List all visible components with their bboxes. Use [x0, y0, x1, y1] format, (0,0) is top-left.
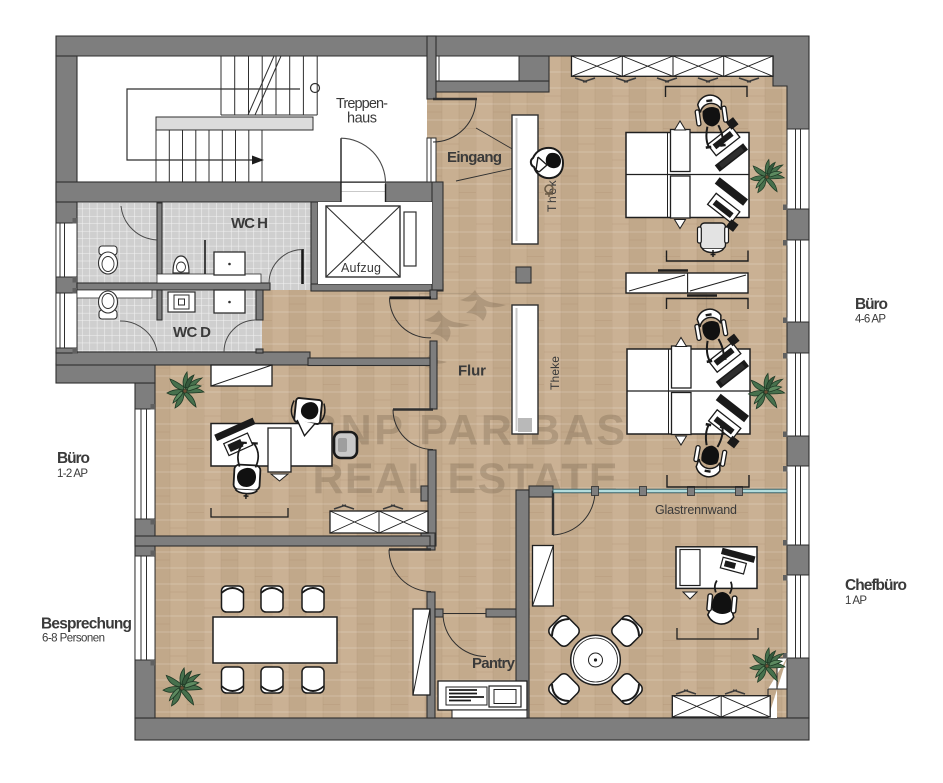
svg-text:Theke: Theke [548, 356, 562, 390]
svg-text:Aufzug: Aufzug [341, 261, 381, 275]
svg-text:6-8 Personen: 6-8 Personen [42, 633, 105, 645]
svg-text:Pantry: Pantry [472, 655, 516, 672]
svg-text:haus: haus [347, 111, 377, 127]
svg-text:Glastrennwand: Glastrennwand [655, 503, 737, 517]
svg-text:Eingang: Eingang [447, 149, 502, 166]
svg-text:Büro: Büro [57, 450, 90, 467]
svg-text:WC D: WC D [173, 324, 211, 341]
svg-text:1 AP: 1 AP [845, 595, 867, 607]
svg-text:4-6 AP: 4-6 AP [855, 314, 886, 326]
svg-text:WC H: WC H [231, 215, 268, 232]
svg-text:1-2 AP: 1-2 AP [57, 468, 88, 480]
svg-text:Chefbüro: Chefbüro [845, 577, 907, 594]
svg-text:REAL ESTATE: REAL ESTATE [313, 455, 618, 503]
svg-text:Flur: Flur [458, 363, 486, 380]
svg-text:Büro: Büro [855, 296, 888, 313]
svg-text:Besprechung: Besprechung [41, 616, 132, 633]
